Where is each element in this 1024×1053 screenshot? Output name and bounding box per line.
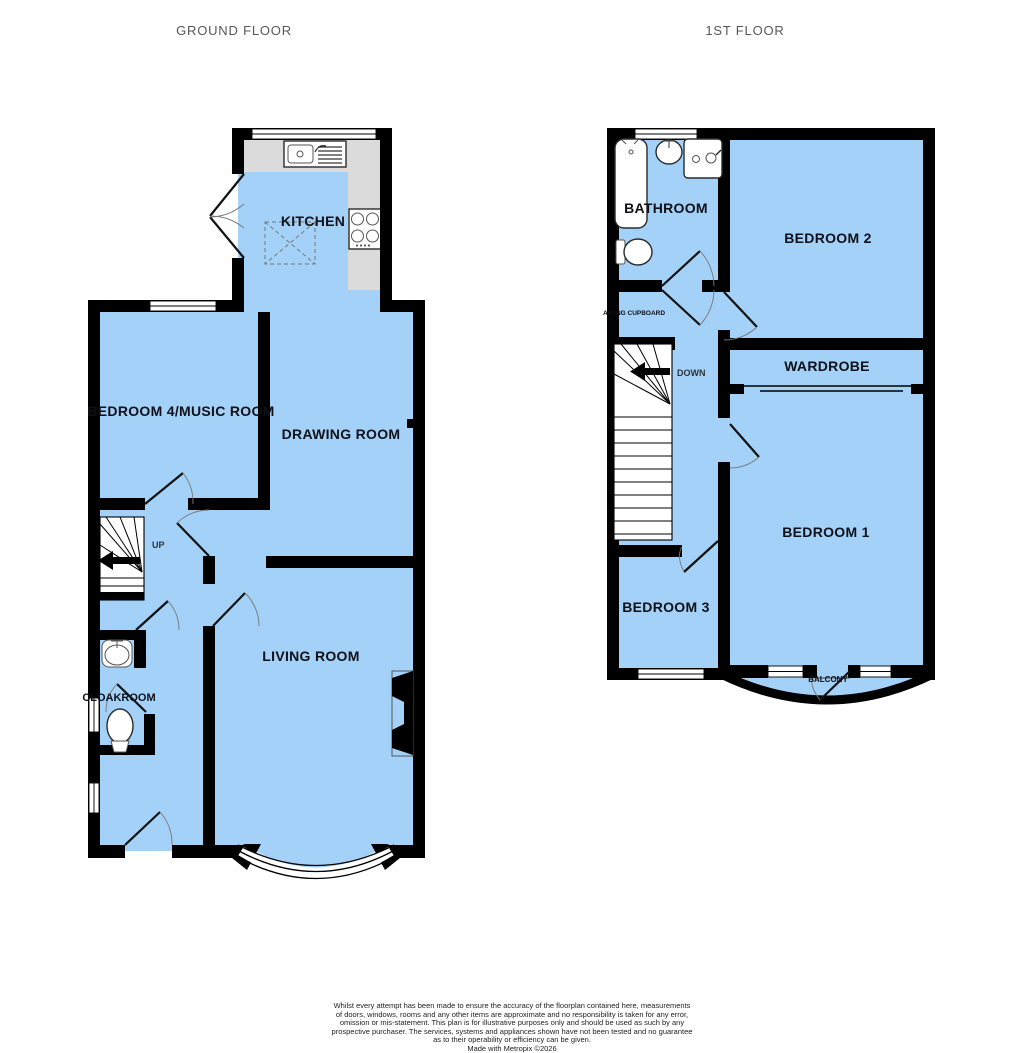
ff-staircase (614, 344, 672, 540)
living-room-label: LIVING ROOM (262, 648, 359, 664)
bedroom2-label: BEDROOM 2 (784, 230, 872, 246)
first-floor-plan: BATHROOM BEDROOM 2 AIRING CUPBOARD WARDR… (603, 128, 935, 700)
first-floor-title: 1ST FLOOR (705, 23, 784, 38)
wardrobe-label: WARDROBE (784, 358, 870, 374)
up-label: UP (152, 540, 165, 550)
bedroom1-label: BEDROOM 1 (782, 524, 870, 540)
cloakroom-label: CLOAKROOM (82, 692, 155, 704)
hob-icon (349, 209, 381, 249)
gf-staircase (98, 517, 144, 600)
bedroom3-label: BEDROOM 3 (622, 599, 710, 615)
bedroom4-label: BEDROOM 4/MUSIC ROOM (87, 403, 274, 419)
down-label: DOWN (677, 368, 706, 378)
ground-floor-title: GROUND FLOOR (176, 23, 292, 38)
bathroom-toilet-icon (616, 239, 652, 265)
cloakroom-basin-icon (102, 640, 132, 667)
airing-cupboard-label: AIRING CUPBOARD (603, 310, 665, 317)
sink-icon (284, 141, 346, 167)
kitchen-label: KITCHEN (281, 213, 345, 229)
metropix-credit: Made with Metropix ©2026 (252, 1045, 772, 1053)
shower-icon (684, 139, 722, 178)
bathroom-basin-icon (656, 140, 682, 164)
ground-floor-plan: KITCHEN BEDROOM 4/MUSIC ROOM DRAWING ROO… (82, 128, 425, 879)
floorplan-canvas: GROUND FLOOR 1ST FLOOR (0, 0, 1024, 1053)
bathroom-label: BATHROOM (624, 200, 708, 216)
drawing-room-label: DRAWING ROOM (282, 426, 401, 442)
disclaimer: Whilst every attempt has been made to en… (252, 1002, 772, 1053)
balcony-label: BALCONY (808, 675, 848, 684)
